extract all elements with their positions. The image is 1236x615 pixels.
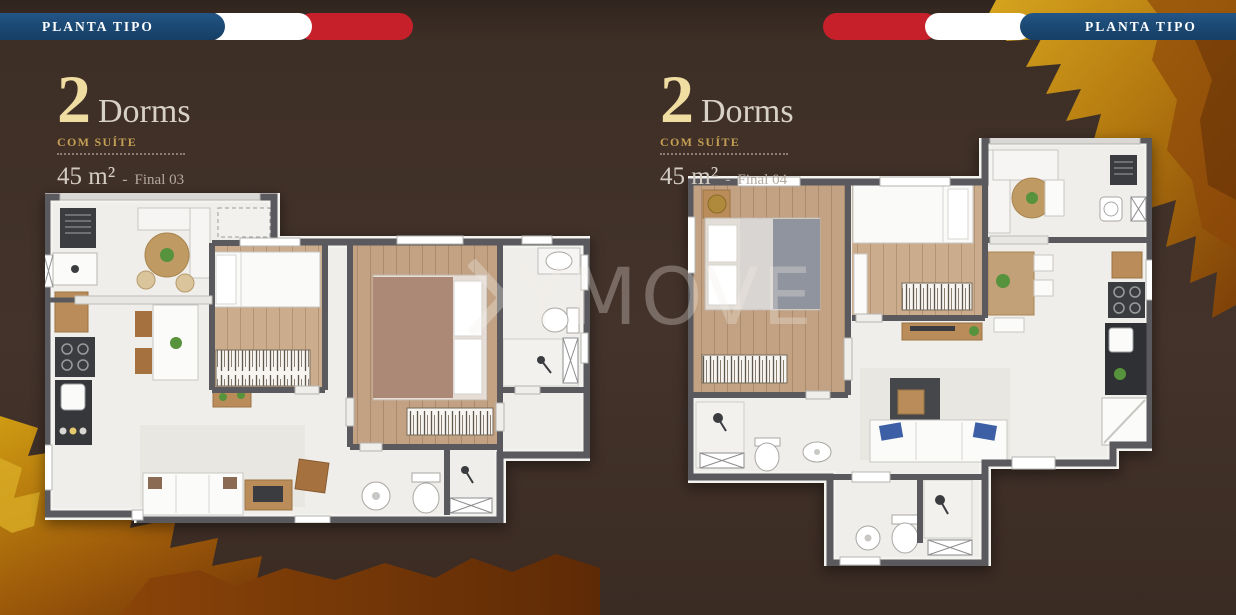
- unit-number: 2: [660, 74, 694, 124]
- unit-header-final-04: 2 Dorms COM SUÍTE 45 m² - Final 04: [660, 74, 930, 191]
- unit-final: Final 04: [738, 172, 788, 189]
- balcony-glass-door: [75, 296, 212, 304]
- floorplan-final-03: [45, 193, 590, 523]
- ribbon-left-red-segment: [298, 13, 413, 40]
- ribbon-left: PLANTA TIPO: [0, 13, 413, 40]
- unit-type: Dorms: [98, 93, 191, 131]
- planta-tipo-page: PLANTA TIPO PLANTA TIPO 2 Dorms COM SUÍT…: [0, 0, 1236, 615]
- unit-subtitle: COM SUÍTE: [660, 135, 930, 150]
- unit-separator: -: [725, 171, 730, 189]
- unit-subtitle: COM SUÍTE: [57, 135, 327, 150]
- ribbon-left-label: PLANTA TIPO: [42, 13, 154, 40]
- living-room: [860, 368, 1010, 462]
- unit-type: Dorms: [701, 93, 794, 131]
- unit-number: 2: [57, 74, 91, 124]
- unit-separator: -: [122, 171, 127, 189]
- floorplan-final-04: [688, 138, 1152, 566]
- dotted-divider: [57, 153, 185, 155]
- unit-area: 45 m²: [660, 163, 718, 191]
- ribbon-right-white-segment: [925, 13, 1032, 40]
- unit-area: 45 m²: [57, 163, 115, 191]
- unit-header-final-03: 2 Dorms COM SUÍTE 45 m² - Final 03: [57, 74, 327, 191]
- tv-sideboard: [902, 323, 982, 340]
- ribbon-right-red-segment: [823, 13, 938, 40]
- dotted-divider: [660, 153, 788, 155]
- ribbon-right-label: PLANTA TIPO: [1085, 13, 1197, 40]
- balcony-glass-door: [990, 236, 1048, 244]
- ribbon-right: PLANTA TIPO: [823, 13, 1236, 40]
- unit-final: Final 03: [135, 172, 185, 189]
